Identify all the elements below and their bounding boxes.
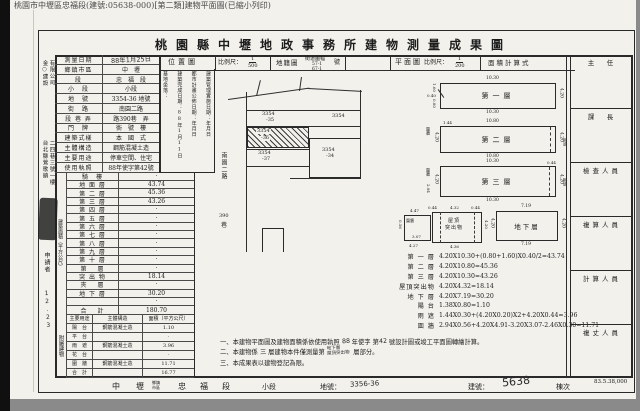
info-row: 地 號 3354-36 地號 bbox=[55, 94, 159, 104]
band-sep2 bbox=[270, 55, 271, 71]
scan-right-edge bbox=[636, 0, 640, 411]
floor-area-table: 建築面積（平方公尺） 騎 樓 · 地 面 層 43.74 第 二 層 45.36 bbox=[55, 173, 195, 315]
bottom-lot-label: 地號： bbox=[320, 384, 341, 391]
floor-area-value: 45.36 bbox=[119, 189, 194, 196]
info-row-value: 88年使字第42號 bbox=[103, 163, 159, 172]
floor-area-value: 180.70 bbox=[119, 307, 194, 314]
official-signature-box: 課 長 bbox=[571, 109, 633, 163]
map-line-3 bbox=[246, 149, 310, 150]
floor-area-value: · bbox=[119, 298, 194, 305]
info-row-label: 街 路 bbox=[55, 104, 103, 113]
plan2-wall-label: 圍牆 bbox=[426, 127, 430, 139]
floor-label bbox=[67, 298, 119, 305]
info-row-label: 段 bbox=[55, 75, 103, 84]
scale2-den: 200 bbox=[455, 63, 465, 69]
floor-area-value: · bbox=[119, 173, 194, 180]
plan2-dim-sideR: 4.20 bbox=[558, 132, 563, 142]
floor-label: 第 九 層 bbox=[67, 248, 119, 255]
floor-label: 地 下 層 bbox=[67, 290, 119, 297]
bottom-district-tag2: 市區 bbox=[152, 386, 160, 390]
attached-rows-wrap: 主要用途 主體構造 面積（平方公尺） 陽 台 鋼筋混凝土造 1.10 平 台 bbox=[67, 315, 194, 378]
film-code: 83.5.38,000 bbox=[594, 380, 627, 386]
sheet-no-label: 號 bbox=[334, 60, 340, 66]
street-number: 390 bbox=[219, 214, 229, 219]
floor-area-value: · bbox=[119, 231, 194, 238]
city-plan-date: 都市計畫公佈日期：年月日 bbox=[191, 71, 198, 170]
plan1-dim-n2: 0.40 bbox=[427, 94, 436, 98]
print-header: 桃園市中壢區忠福段(建號:05638-000)[第二類]建物平面圖(已縮小列印) bbox=[14, 2, 271, 10]
bottom-bldg-value: 5638 bbox=[502, 375, 531, 389]
info-row-value: 忠 福 段 bbox=[103, 75, 159, 84]
notes-block: 一、本建物平面圖及建物面積係依使用執照 88 年使字 第42 號設計圖或竣工平面… bbox=[220, 336, 572, 368]
official-title: 複算人員 bbox=[583, 221, 621, 229]
plan5-name: 地下層 bbox=[496, 211, 558, 241]
parcel-label-34b: -34 bbox=[326, 154, 334, 159]
plan4-dim-top: 4.32 bbox=[450, 206, 459, 210]
attached-area-header: 面積（平方公尺） bbox=[143, 315, 194, 322]
calc-label: 屋頂突出物 bbox=[383, 282, 435, 291]
sheet-grid-v2: 67-1 bbox=[312, 68, 322, 73]
info-row: 主要用途 停車空間、住宅 bbox=[55, 153, 159, 163]
band-divider bbox=[160, 55, 161, 173]
plan2-name: 第二層 bbox=[440, 126, 556, 153]
parcel-label-35b: -35 bbox=[266, 118, 274, 123]
attached-area: 1.10 bbox=[143, 325, 194, 331]
floor-label: 突 出 物 bbox=[67, 273, 119, 280]
floor-area-value: 18.14 bbox=[119, 273, 194, 280]
applicant-label: 申請者 bbox=[43, 252, 49, 282]
floor-label: 騎 樓 bbox=[67, 173, 119, 180]
plan3-name: 第三層 bbox=[440, 166, 556, 197]
floor-label: 夾 層 bbox=[67, 281, 119, 288]
plan2-dim-top: 10.80 bbox=[486, 120, 499, 125]
applicant-address-col1: 台北縣鶯歌鎮 bbox=[41, 140, 47, 200]
floor-label: 第 三 層 bbox=[67, 198, 119, 205]
note2-text2: 層建物本件僅測量第 bbox=[266, 347, 325, 356]
scale2-label: 比例尺： bbox=[424, 60, 448, 66]
bottom-bldg-label: 建號： bbox=[468, 384, 489, 391]
floor-label: 合 計 bbox=[67, 306, 119, 313]
attached-use: 雨 遮 bbox=[67, 342, 93, 350]
attached-use: 花 台 bbox=[67, 351, 93, 359]
plan2-dim-d: 1.44 bbox=[443, 121, 452, 125]
attached-structure bbox=[93, 351, 143, 359]
officials-divider bbox=[566, 55, 567, 378]
map-line-west bbox=[246, 92, 247, 252]
band-sep3 bbox=[345, 55, 346, 71]
note2-text: 二、本建物係 bbox=[220, 347, 260, 356]
floor-area-value: · bbox=[119, 281, 194, 288]
floor-area-value: · bbox=[119, 206, 194, 213]
scale2-fraction: 1 200 bbox=[455, 56, 465, 69]
plan3-dim-sideL: 4.20 bbox=[433, 174, 438, 184]
calc-label: 第 三 層 bbox=[383, 272, 435, 281]
parcel-3354-34-outline bbox=[309, 138, 361, 178]
attached-area: 3.96 bbox=[143, 343, 194, 349]
attached-area: · bbox=[143, 352, 194, 358]
plan4-wall-inner: 3.07 bbox=[412, 235, 421, 239]
official-title: 主 任 bbox=[588, 59, 617, 67]
calc-label: 雨 遮 bbox=[383, 311, 435, 320]
applicant-name-col1: 金○建設 bbox=[41, 60, 47, 130]
cadastre-label: 地籍圖 bbox=[276, 60, 299, 67]
attached-row: 陽 台 鋼筋混凝土造 1.10 bbox=[67, 324, 194, 333]
attached-rows: 陽 台 鋼筋混凝土造 1.10 平 台 · 雨 遮 鋼筋混凝土造 3.96 bbox=[67, 324, 194, 378]
info-row-label: 段 巷 弄 bbox=[55, 114, 103, 123]
attached-structures-table: 附屬建物 主要用途 主體構造 面積（平方公尺） 陽 台 鋼筋混凝土造 1.10 bbox=[55, 315, 195, 378]
info-row: 門 牌 衖 號 樓 bbox=[55, 124, 159, 134]
attached-structure bbox=[93, 369, 143, 377]
info-row-value: 鋼筋混凝土造 bbox=[103, 143, 159, 152]
note2-hand-floors: 三 bbox=[260, 347, 267, 356]
plan4-name1: 屋頂 bbox=[448, 219, 460, 224]
official-signature-box: 複算人員 bbox=[571, 217, 633, 271]
parcel-label-36b: -36 bbox=[260, 136, 270, 141]
map-line-5 bbox=[290, 178, 361, 179]
info-row-value: 3354-36 地號 bbox=[103, 94, 159, 103]
official-title: 檢查人員 bbox=[583, 167, 621, 175]
calc-formula: 1.44X0.30+(4.20X0.20)X2+4.20X0.44=3.96 bbox=[439, 312, 577, 319]
plan2-canopy-dash bbox=[550, 127, 551, 152]
calc-formula: 4.20X7.19=30.20 bbox=[439, 293, 494, 300]
map-line-4 bbox=[246, 166, 310, 167]
plan5-dim-sideL: 4.20 bbox=[489, 218, 494, 228]
floor-label: 第 十 層 bbox=[67, 256, 119, 263]
calc-label: 地 下 層 bbox=[383, 292, 435, 301]
plan3-wall-label: 圍牆 bbox=[426, 168, 430, 180]
plan1-dim-n3: 0.80 bbox=[432, 99, 436, 108]
official-title: 計算人員 bbox=[583, 275, 621, 283]
plan4-dim-bottom: 4.36 bbox=[450, 245, 459, 249]
scale1-den: 500 bbox=[248, 63, 258, 69]
note2-hand-roof: 屋頂突出物 bbox=[327, 351, 350, 357]
attached-row: 圍 牆 鋼筋混凝土造 11.71 bbox=[67, 360, 194, 369]
info-row: 鄉鎮市區 中 壢 bbox=[55, 65, 159, 75]
plan4-gap1: 0.44 bbox=[428, 206, 437, 210]
attached-row: 合 計 16.77 bbox=[67, 369, 194, 378]
note1-text3: 號設計圖或竣工平面圖轉繪計算。 bbox=[387, 337, 483, 346]
plan1-dim-side: 4.20 bbox=[558, 88, 563, 98]
note-3: 三、本成果表以建物登記為限。 bbox=[220, 357, 572, 368]
plan5-dim-top: 7.19 bbox=[521, 205, 531, 210]
plan4-wall-bottom: 4.27 bbox=[409, 244, 418, 248]
calc-formula: 4.20X4.32=18.14 bbox=[439, 283, 494, 290]
attached-use: 圍 牆 bbox=[67, 360, 93, 368]
attached-use: 平 台 bbox=[67, 333, 93, 341]
sheet-fold-shadow bbox=[33, 10, 34, 392]
page-title: 桃園縣中壢地政事務所建物測量成果圖 bbox=[155, 39, 512, 51]
parcel-label-37b: -37 bbox=[262, 157, 270, 162]
calc-formula: 4.20X10.80=45.36 bbox=[439, 263, 498, 270]
attached-area: 16.77 bbox=[143, 370, 194, 376]
plan4-name2: 突出物 bbox=[445, 226, 463, 231]
plan4-wall-side: 0.56 bbox=[398, 220, 402, 229]
plan4-wall-top: 4.47 bbox=[410, 209, 419, 213]
floor-label: 第 七 層 bbox=[67, 231, 119, 238]
scale1-num: 1 bbox=[249, 56, 256, 63]
attached-area: 11.71 bbox=[143, 361, 194, 367]
band-sep5 bbox=[480, 55, 481, 71]
area-calc-label: 面積計算式 bbox=[488, 60, 531, 67]
official-signature-box: 檢查人員 bbox=[571, 163, 633, 217]
official-signature-box: 計算人員 bbox=[571, 271, 633, 325]
plan4-gap2: 0.44 bbox=[471, 206, 480, 210]
band-bottom-line bbox=[160, 70, 575, 71]
info-row-label: 地 號 bbox=[55, 94, 103, 103]
attached-area: · bbox=[143, 334, 194, 340]
attached-structure: 鋼筋混凝土造 bbox=[93, 360, 143, 368]
attached-row: 雨 遮 鋼筋混凝土造 3.96 bbox=[67, 342, 194, 351]
info-row-label: 主要用途 bbox=[55, 153, 103, 162]
info-row-value: 南園二路 bbox=[103, 104, 159, 113]
scale2-num: 1 bbox=[456, 56, 463, 63]
info-row: 小 段 小段 bbox=[55, 84, 159, 94]
plan-label: 平面圖 bbox=[395, 59, 422, 66]
floor-label: 第 四 層 bbox=[67, 206, 119, 213]
plan4-dim-side: 4.20 bbox=[484, 220, 488, 229]
official-signature-box: 主 任 bbox=[571, 55, 633, 109]
calc-label: 第 二 層 bbox=[383, 262, 435, 271]
band-sep4 bbox=[390, 55, 391, 71]
floor-area-value: · bbox=[119, 265, 194, 272]
attached-side-label: 附屬建物 bbox=[55, 315, 67, 378]
calc-formula: 4.20X10.30=43.26 bbox=[439, 273, 498, 280]
info-row: 街 路 南園二路 bbox=[55, 104, 159, 114]
plan5-dim-bottom: 7.19 bbox=[521, 243, 531, 248]
floor-area-value: 30.20 bbox=[119, 290, 194, 297]
scale1-fraction: 1 500 bbox=[248, 56, 258, 69]
floor-area-side-label: 建築面積（平方公尺） bbox=[55, 173, 67, 315]
note1-text2: 年使字 第 bbox=[350, 337, 379, 346]
plan3-dim-bottom: 10.30 bbox=[486, 199, 499, 204]
attached-use: 陽 台 bbox=[67, 324, 93, 332]
official-title: 課 長 bbox=[588, 113, 617, 121]
attached-use-header: 主要用途 bbox=[67, 315, 93, 323]
floor-label: 第 五 層 bbox=[67, 214, 119, 221]
parcel-label-3354: 3354 bbox=[332, 114, 345, 119]
floor-area-side-text: 建築面積（平方公尺） bbox=[57, 219, 64, 269]
note-2: 二、本建物係 三 層建物本件僅測量第地下層屋頂突出物 層部分。 bbox=[220, 347, 572, 358]
scanned-survey-document: 桃園市中壢區忠福段(建號:05638-000)[第二類]建物平面圖(已縮小列印)… bbox=[0, 0, 640, 411]
plan4-wall-label: 圍牆 bbox=[406, 219, 414, 223]
scale1-label: 比例尺： bbox=[218, 60, 242, 66]
completion-date: 建築完成日期：88年1月11日 bbox=[176, 71, 183, 170]
plan3-dim-top: 10.30 bbox=[486, 160, 499, 165]
plan1-dim-top: 10.30 bbox=[486, 77, 499, 82]
info-row-value: 中 壢 bbox=[103, 65, 159, 74]
attached-row: 平 台 · bbox=[67, 333, 194, 342]
info-row: 建築式樣 本 國 式 bbox=[55, 133, 159, 143]
bottom-subsection: 小段 bbox=[262, 384, 276, 391]
floor-area-row: 地 下 層 30.20 bbox=[67, 290, 194, 298]
plan1-name: 第一層 bbox=[440, 83, 556, 109]
calc-label: 陽 台 bbox=[383, 301, 435, 310]
info-row-value: 衖 號 樓 bbox=[103, 123, 159, 132]
info-row-label: 小 段 bbox=[55, 84, 103, 93]
info-row-value: 停車空間、住宅 bbox=[103, 153, 159, 162]
plan4-dash1 bbox=[440, 212, 441, 243]
note3-text: 三、本成果表以建物登記為限。 bbox=[220, 358, 308, 367]
calc-label: 第 一 層 bbox=[383, 252, 435, 261]
floor-area-value: 43.74 bbox=[119, 181, 194, 188]
info-row-value: 本 國 式 bbox=[103, 133, 159, 142]
scan-edge-bar bbox=[0, 0, 10, 411]
plan3-dim-d: 0.44 bbox=[547, 161, 556, 165]
bottom-unit-label: 棟次 bbox=[556, 384, 570, 391]
info-row: 主體構造 鋼筋混凝土造 bbox=[55, 143, 159, 153]
floor-label: 第 二 層 bbox=[67, 189, 119, 196]
survey-date-label: 測量日期 bbox=[55, 55, 103, 64]
attached-use: 合 計 bbox=[67, 369, 93, 377]
info-rows: 鄉鎮市區 中 壢 段 忠 福 段 小 段 小段 地 號 3354-36 地號 bbox=[55, 65, 159, 173]
official-title: 複丈人員 bbox=[583, 329, 621, 337]
info-row-label: 鄉鎮市區 bbox=[55, 65, 103, 74]
applicant-name-col2: 有限公司 bbox=[48, 60, 54, 130]
street-lane: 巷 bbox=[221, 223, 227, 229]
info-row-value: 路390巷 弄 bbox=[103, 114, 159, 123]
location-map-label: 位置圖 bbox=[168, 59, 198, 66]
plan3-canopy-dash bbox=[549, 167, 550, 196]
bottom-section: 忠 福 段 bbox=[178, 383, 233, 391]
scan-bottom-band bbox=[10, 399, 640, 411]
info-row: 段 忠 福 段 bbox=[55, 75, 159, 85]
floor-area-value: 43.26 bbox=[119, 198, 194, 205]
attached-side-text: 附屬建物 bbox=[57, 335, 65, 357]
attached-structure: 鋼筋混凝土造 bbox=[93, 324, 143, 332]
attached-header-row: 主要用途 主體構造 面積（平方公尺） bbox=[67, 315, 194, 324]
floor-label: 第 層 bbox=[67, 265, 119, 272]
attached-structure-header: 主體構造 bbox=[93, 315, 143, 323]
plan1-dim-n1: 1.60 bbox=[432, 83, 436, 92]
note1-hand-no: 42 bbox=[379, 338, 387, 345]
note-1: 一、本建物平面圖及建物面積係依使用執照 88 年使字 第42 號設計圖或竣工平面… bbox=[220, 336, 572, 347]
info-row-label: 門 牌 bbox=[55, 124, 103, 133]
plan4-dash2 bbox=[474, 212, 475, 243]
floor-area-value: · bbox=[119, 215, 194, 222]
note2-hand-levels: 地下層屋頂突出物 bbox=[327, 347, 350, 357]
plan5-dim-sideR: 4.20 bbox=[560, 218, 565, 228]
plan1-dim-bottom: 10.30 bbox=[486, 111, 499, 116]
handwritten-receipt-number: 12.23 bbox=[43, 290, 51, 330]
building-info-table: 測量日期 88年1月25日 鄉鎮市區 中 壢 段 忠 福 段 小 段 小段 bbox=[55, 55, 160, 173]
note2-text3: 層部分。 bbox=[351, 347, 378, 356]
officials-column: 主 任 課 長 檢查人員 複算人員 計算人員 複丈人員 bbox=[570, 55, 633, 378]
floor-area-value: · bbox=[119, 240, 194, 247]
info-row-value: 小段 bbox=[103, 84, 159, 93]
plan2-dim-sideL: 4.20 bbox=[433, 132, 438, 142]
info-row-label: 建築式樣 bbox=[55, 133, 103, 142]
street-name: 南園二路 bbox=[220, 152, 226, 210]
floor-label: 地 面 層 bbox=[67, 181, 119, 188]
calc-formula: 1.38X0.80=1.10 bbox=[439, 302, 490, 309]
floor-area-value: · bbox=[119, 256, 194, 263]
plan3-dim-d2: 2.94 bbox=[426, 184, 430, 193]
note1-text: 一、本建物平面圖及建物面積係依使用執照 bbox=[220, 337, 342, 346]
site-label: 基地坐落： bbox=[162, 71, 169, 170]
attached-structure bbox=[93, 333, 143, 341]
calc-formula: 4.20X10.30+(0.80+1.60)X0.40/2=43.74 bbox=[439, 253, 565, 260]
floor-area-rows: 騎 樓 · 地 面 層 43.74 第 二 層 45.36 第 三 層 43.2… bbox=[67, 173, 194, 315]
floor-label: 第 八 層 bbox=[67, 239, 119, 246]
attached-row: 花 台 · bbox=[67, 351, 194, 360]
attached-structure: 鋼筋混凝土造 bbox=[93, 342, 143, 350]
info-row-label: 使用執照 bbox=[55, 163, 103, 172]
site-dates-cell: 基地坐落： 建築完成日期：88年1月11日 都市計畫公佈日期：年月日 建築管理實… bbox=[160, 69, 215, 173]
floor-label: 第 六 層 bbox=[67, 223, 119, 230]
info-row: 使用執照 88年使字第42號 bbox=[55, 163, 159, 173]
survey-date-row: 測量日期 88年1月25日 bbox=[55, 55, 159, 65]
map-driveway bbox=[262, 228, 284, 252]
floor-area-value: · bbox=[119, 248, 194, 255]
floor-area-row: 合 計 180.70 bbox=[67, 306, 194, 314]
plan3-dim-sideR: 4.20 bbox=[558, 174, 563, 184]
note1-hand-year: 88 bbox=[341, 338, 349, 345]
floor-area-value: · bbox=[119, 223, 194, 230]
bottom-district: 中 壢 bbox=[112, 383, 148, 391]
band-sep1 bbox=[215, 55, 216, 71]
parcel-label-36a: 3354 bbox=[256, 129, 271, 134]
info-row-label: 主體構造 bbox=[55, 143, 103, 152]
info-row: 段 巷 弄 路390巷 弄 bbox=[55, 114, 159, 124]
calc-label: 圍 牆 bbox=[383, 321, 435, 330]
official-signature-box: 複丈人員 bbox=[571, 325, 633, 378]
building-admin-date: 建築管理實施日期：年月日 bbox=[205, 71, 212, 170]
